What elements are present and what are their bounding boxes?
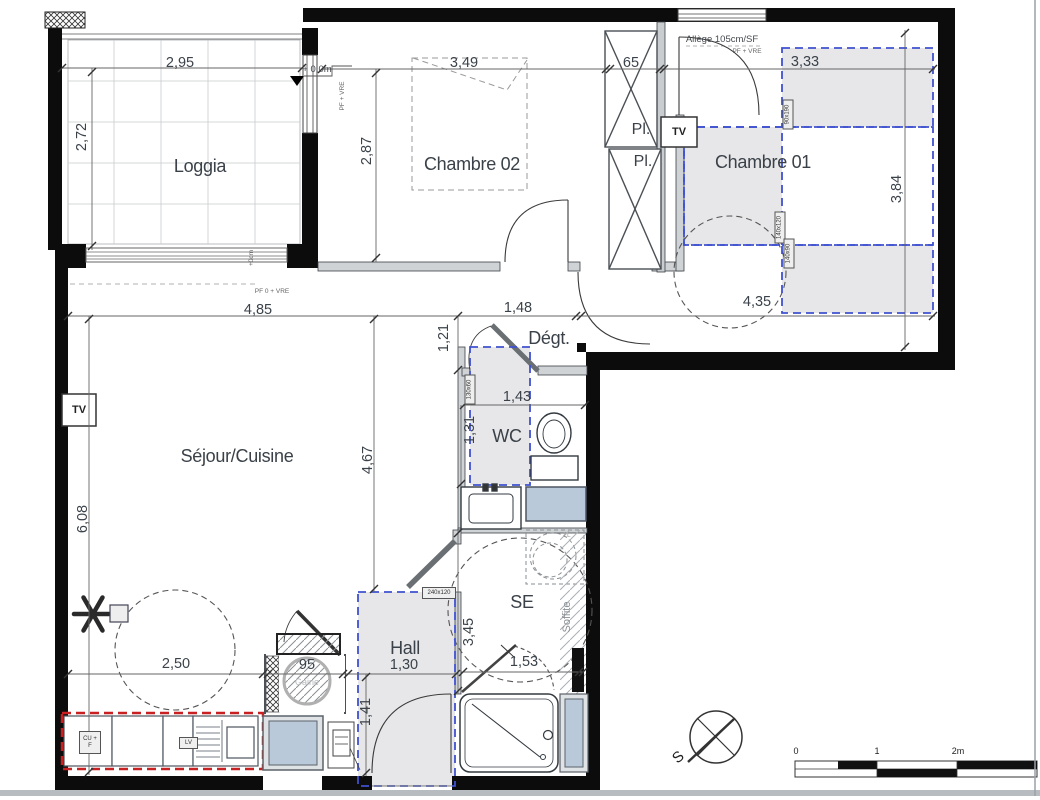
se-glazed-panel: [560, 694, 588, 772]
tv-label-chambre01: TV: [662, 121, 696, 143]
dim-se-width: 1,53: [494, 654, 554, 670]
size-tag-zone140: 140x90: [784, 239, 795, 269]
dim-chambre01-height: 3,84: [889, 159, 905, 219]
dim-chambre02-width: 3,49: [434, 55, 494, 71]
scale-bar: [795, 761, 1037, 777]
pf-vre-note-loggia: PF + VRE: [339, 71, 347, 121]
size-tag-hall: 240x120: [422, 587, 456, 599]
dim-table-diameter: 2,50: [146, 656, 206, 672]
dim-sejour-height-right: 4,67: [360, 430, 376, 490]
threshold-note: +0cm: [248, 238, 256, 278]
size-tag-bed-single: 90x190: [783, 100, 794, 130]
dim-chambre01-depth: 4,35: [727, 294, 787, 310]
dim-sejour-width: 4,85: [228, 302, 288, 318]
pf0-vre-note: PF 0 + VRE: [242, 288, 302, 296]
kitchen-unit-lv: LV: [179, 737, 198, 749]
dim-chambre01-width: 3,33: [775, 54, 835, 70]
page-bottom-edge: [0, 790, 1040, 796]
room-label-degagement: Dégt.: [509, 328, 589, 348]
floor-plan: Loggia Chambre 02 Chambre 01 Séjour/Cuis…: [0, 0, 1040, 800]
dim-chambre02-height: 2,87: [359, 121, 375, 181]
kitchen-window: [263, 716, 323, 770]
gaine-note: Gaine: [277, 676, 337, 688]
duct-bar: [572, 648, 584, 692]
dim-wc-width: 1,43: [487, 389, 547, 405]
closet-label-2: Pl.: [618, 153, 668, 171]
dim-loggia-width: 2,95: [150, 55, 210, 71]
dim-sejour-height-left: 6,08: [75, 489, 91, 549]
ventilation-box: [110, 605, 128, 622]
hall-angled-partition: [408, 541, 455, 587]
level-note: + 0,0m: [292, 64, 342, 76]
room-label-chambre02: Chambre 02: [392, 154, 552, 174]
compass-rose: [688, 711, 742, 763]
shower-tray: [460, 694, 558, 772]
kitchen-unit-cu-f: CU + F: [79, 731, 101, 754]
electrical-box: [328, 722, 360, 770]
toilet: [531, 413, 578, 480]
dim-closet-width: 65: [601, 55, 661, 71]
scale-label-2m: 2m: [948, 746, 968, 756]
pf-vre-note-chambre01: PF + VRE: [722, 48, 772, 56]
dim-hall-height: 1,41: [358, 682, 374, 742]
room-label-loggia: Loggia: [135, 156, 265, 176]
dim-se-height: 3,45: [461, 602, 477, 662]
room-label-se: SE: [492, 592, 552, 612]
insulation-hatch: [45, 12, 85, 28]
dim-loggia-height: 2,72: [74, 107, 90, 167]
room-label-chambre01: Chambre 01: [683, 152, 843, 172]
dim-gaine-width: 95: [277, 657, 337, 673]
tv-label-sejour: TV: [62, 399, 96, 421]
counter-top: [526, 487, 586, 521]
allege-note: Allège 105cm/SF: [672, 34, 772, 46]
washbasin: [461, 484, 521, 529]
dim-degt-width: 1,48: [488, 300, 548, 316]
dim-wc-height: 1,31: [462, 400, 478, 460]
scale-label-1: 1: [872, 746, 882, 756]
soffite-note: Soffite: [560, 587, 574, 647]
dim-degt-height: 1,21: [436, 308, 452, 368]
scale-label-0: 0: [791, 746, 801, 756]
washer-label: LL: [557, 532, 577, 540]
dim-hall-width: 1,30: [374, 657, 434, 673]
ventilation-symbol: [74, 598, 112, 631]
room-label-hall: Hall: [365, 638, 445, 658]
size-tag-washbasin: 130x60: [465, 375, 476, 405]
room-label-wc: WC: [477, 426, 537, 446]
room-label-sejour-cuisine: Séjour/Cuisine: [147, 446, 327, 466]
closet-label-1: Pl.: [616, 121, 666, 139]
